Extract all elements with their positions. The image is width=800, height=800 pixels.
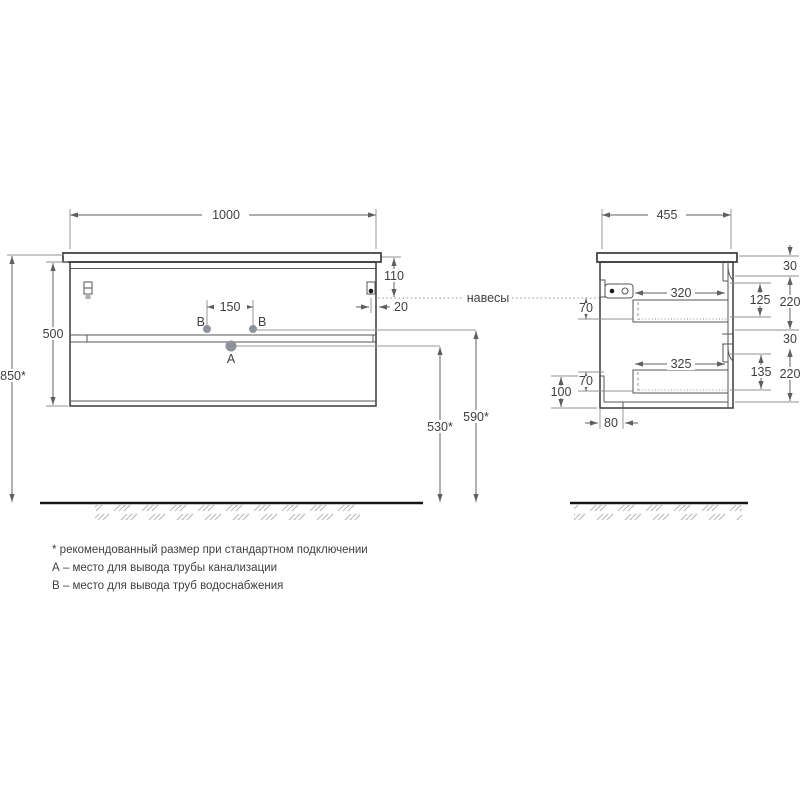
side-countertop <box>597 253 737 262</box>
point-a-dot <box>226 341 237 352</box>
svg-text:30: 30 <box>783 332 797 346</box>
svg-text:455: 455 <box>657 208 678 222</box>
footnote-recommended: * рекомендованный размер при стандартном… <box>52 544 368 556</box>
side-hanger-bracket-icon <box>600 280 633 298</box>
dim-counter-to-hanger-110: 110 <box>378 257 410 297</box>
dim-recess-depth-80: 80 <box>585 409 638 430</box>
front-view: B B A <box>63 253 381 406</box>
svg-text:220: 220 <box>780 295 800 309</box>
svg-text:135: 135 <box>751 365 772 379</box>
dim-hanger-inset-20: 20 <box>356 298 408 314</box>
dim-holes-spacing-150: 150 <box>207 300 253 314</box>
dim-drawer2-front-220: 220 <box>777 349 800 401</box>
svg-text:325: 325 <box>671 357 692 371</box>
dim-body-height-500: 500 <box>37 262 69 406</box>
floor-hatching-front <box>95 505 360 520</box>
dim-b-to-floor-590: 590* <box>257 330 493 502</box>
svg-text:70: 70 <box>579 301 593 315</box>
svg-text:125: 125 <box>750 293 771 307</box>
rear-recess <box>600 376 728 408</box>
dim-drawer1-depth-320: 320 <box>635 286 725 300</box>
dim-a-to-floor-530: 530* <box>236 346 457 502</box>
front-countertop <box>63 253 381 262</box>
svg-text:110: 110 <box>384 269 404 283</box>
dim-drawer2-depth-325: 325 <box>635 357 725 371</box>
hanger-bracket-right-icon <box>367 282 375 294</box>
drawer1-box <box>633 300 728 322</box>
point-b-left-label: B <box>197 315 205 329</box>
svg-text:500: 500 <box>43 327 64 341</box>
dim-bottom-offset-70: 70 <box>578 372 634 391</box>
hangers-label: навесы <box>467 291 510 305</box>
svg-text:70: 70 <box>579 374 593 388</box>
svg-text:850*: 850* <box>0 369 26 383</box>
svg-text:220: 220 <box>780 367 800 381</box>
dim-drawer1-front-220: 220 <box>777 277 800 329</box>
dim-drawer2-opening-135: 135 <box>748 355 774 389</box>
hangers-annotation: навесы <box>378 291 600 305</box>
svg-text:590*: 590* <box>463 410 489 424</box>
front-cabinet-body <box>70 262 376 406</box>
footnotes: * рекомендованный размер при стандартном… <box>52 544 368 592</box>
svg-text:30: 30 <box>783 259 797 273</box>
svg-text:80: 80 <box>604 416 618 430</box>
front-drawer-divider <box>70 335 376 342</box>
dim-front-width-1000: 1000 <box>70 208 376 249</box>
svg-text:20: 20 <box>394 300 408 314</box>
drawer2-box <box>633 370 728 393</box>
svg-text:1000: 1000 <box>212 208 240 222</box>
side-view <box>597 253 737 408</box>
footnote-point-a: А – место для вывода трубы канализации <box>52 562 277 574</box>
point-a-label: A <box>227 352 236 366</box>
dim-hanger-drop-70: 70 <box>578 298 634 319</box>
svg-text:530*: 530* <box>427 420 453 434</box>
point-b-right-label: B <box>258 315 266 329</box>
svg-text:150: 150 <box>220 300 241 314</box>
point-b-right-dot <box>249 325 257 333</box>
vanity-technical-drawing: B B A <box>0 0 800 800</box>
dim-side-depth-455: 455 <box>602 208 731 249</box>
floor-side <box>570 503 748 520</box>
floor-front <box>40 503 423 520</box>
floor-hatching-side <box>574 505 742 520</box>
svg-text:320: 320 <box>671 286 692 300</box>
hanger-bracket-left-icon <box>84 282 92 299</box>
dim-drawer1-opening-125: 125 <box>747 284 773 316</box>
dim-mount-height-850: 850* <box>0 255 64 502</box>
svg-text:100: 100 <box>551 385 572 399</box>
footnote-point-b: В – место для вывода труб водоснабжения <box>52 580 283 592</box>
